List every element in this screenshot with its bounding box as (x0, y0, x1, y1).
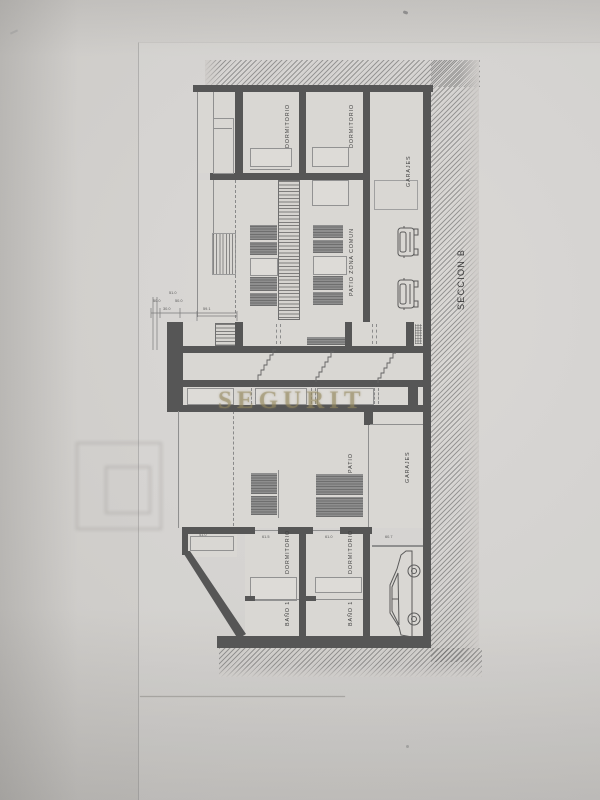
dim-30: 30.0 (163, 307, 170, 311)
furniture-living-a3 (250, 277, 277, 291)
dim-610: 61.0 (325, 535, 332, 539)
band-slab-2 (167, 380, 431, 387)
band-corridor (183, 353, 423, 380)
show-through-ghost-inner (105, 466, 151, 514)
furniture-edge-line (278, 470, 279, 518)
room-label-dormitorio-lower-2: DORMITORIO (347, 530, 353, 574)
slab-gap-line-1 (255, 530, 278, 531)
bath-wall-stub-1 (245, 596, 255, 601)
door-dash-5 (374, 388, 379, 404)
room-label-dormitorio-upper-2: DORMITORIO (348, 104, 354, 148)
small-room-fixture (190, 536, 234, 551)
terrace-line (213, 180, 214, 235)
room-label-dormitorio-upper-1: DORMITORIO (284, 104, 290, 148)
garage-lower-ceiling (372, 545, 423, 547)
table-living-b (313, 256, 347, 275)
room-garage-lower (370, 546, 423, 638)
ground-hatch-right (431, 60, 479, 662)
furniture-living-b2 (313, 240, 343, 253)
speck-top-left (10, 29, 18, 34)
bed-line-1 (250, 169, 290, 170)
room-label-garajes-upper: GARAJES (405, 155, 411, 187)
room-label-bano-1a: BAÑO 1 (284, 601, 290, 626)
dashed-axis-lower (233, 411, 234, 526)
bed-dormitorio-upper-1 (250, 148, 292, 167)
dim-51: 51.0 (169, 291, 176, 295)
furniture-living-a4 (250, 293, 277, 306)
room-label-patio-zona-comun: PATIO ZONA COMUN (348, 228, 354, 296)
table-living-a (250, 258, 278, 276)
door-dash-2 (372, 324, 377, 344)
floor-slab-upper (210, 173, 370, 180)
dashed-axis-upper (235, 180, 236, 318)
dim-410: 41.0 (199, 533, 206, 537)
room-label-patio: PATIO (347, 453, 353, 473)
wall-right (423, 85, 431, 648)
band-left-wall (167, 322, 183, 411)
section-title: SECCION B (456, 249, 466, 310)
dim-50b: 50.0 (175, 299, 182, 303)
dim-607: 60.7 (385, 535, 392, 539)
room-label-dormitorio-lower-1: DORMITORIO (284, 530, 290, 574)
furniture-living-a1 (250, 225, 277, 240)
bath-wall-stub-2 (306, 596, 316, 601)
furniture-patio-c1 (251, 473, 277, 494)
facade-line-left (197, 92, 198, 317)
dim-615: 61.5 (262, 535, 269, 539)
wall-bottom (217, 636, 431, 648)
wall-upper-a (235, 92, 243, 180)
stamp-watermark: SEGURIT (218, 387, 366, 415)
furniture-living-b1 (313, 225, 343, 238)
annex-divider (214, 128, 232, 129)
furniture-patio-d2 (316, 497, 363, 517)
furniture-patio-c2 (251, 496, 277, 515)
furniture-living-b3 (313, 276, 343, 290)
annex-line (213, 92, 214, 118)
dim-591: 59.1 (203, 307, 210, 311)
band-cell-wall-2 (345, 322, 352, 346)
paper-crease-line (140, 696, 345, 697)
room-label-garajes-lower: GARAJES (404, 451, 410, 483)
wall-lower-c (363, 533, 370, 638)
lower-slab-a (182, 527, 255, 534)
stair-section-strip (278, 180, 300, 320)
ground-hatch-bottom (219, 648, 482, 677)
furniture-patio-d1 (316, 474, 363, 495)
dim-50a: 50.0 (153, 299, 160, 303)
bed-dormitorio-lower-1 (250, 577, 297, 601)
patio-right-line (368, 425, 369, 528)
furniture-living-b4 (313, 292, 343, 305)
wall-upper-b (299, 92, 306, 180)
wall-upper-c (363, 92, 370, 322)
wall-lower-b (299, 533, 306, 638)
annex-window (213, 118, 234, 174)
speck-top (403, 10, 409, 15)
room-patio-lower (180, 411, 423, 528)
bed-dormitorio-lower-2 (315, 577, 362, 593)
band-slab-1 (167, 346, 431, 353)
band-dotted-cell (415, 324, 422, 344)
lower-garage-ceiling-line (370, 424, 423, 425)
room-label-bano-1b: BAÑO 1 (347, 601, 353, 626)
photographed-section-drawing: DORMITORIO DORMITORIO GARAJES PATIO ZONA… (0, 0, 600, 800)
bed-dormitorio-upper-2 (312, 147, 349, 167)
band-cell-wall-4 (408, 387, 418, 405)
band-furniture-smudge (307, 337, 345, 345)
door-dash-1 (276, 324, 281, 344)
small-room-left-wall (182, 528, 188, 555)
slab-gap-line-2 (313, 530, 340, 531)
speck-bottom (406, 745, 409, 748)
exterior-stair-ladder (212, 233, 236, 275)
garage-ramp-outline (374, 180, 418, 210)
lower-left-line (178, 411, 179, 528)
band-cell-wall-3 (406, 322, 414, 346)
band-stair-cell (215, 323, 237, 346)
bed-under-slab (312, 180, 349, 206)
band-cell-wall-1 (235, 322, 243, 346)
wall-top (193, 85, 433, 92)
furniture-living-a2 (250, 242, 277, 255)
